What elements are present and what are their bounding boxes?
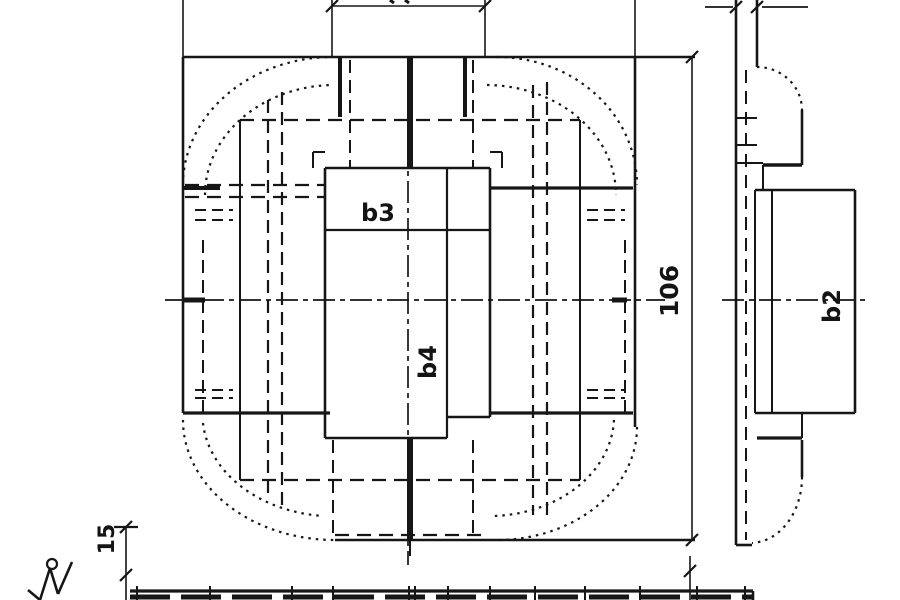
solid-edge-line — [390, 0, 394, 3]
technical-drawing: b3b4106b215 — [0, 0, 900, 600]
drawing-sheet: b3b4106b215 — [0, 0, 900, 600]
dimension-label-106: 106 — [655, 265, 684, 317]
solid-edge-line — [28, 590, 40, 600]
corner-radius-arc — [493, 420, 614, 516]
corner-radius-arc — [757, 67, 802, 110]
solid-edge-line — [58, 562, 72, 594]
corner-radius-arc — [203, 423, 323, 516]
surface-finish-mark-circle — [47, 559, 57, 569]
corner-radius-arc — [752, 477, 802, 543]
solid-edge-line — [40, 568, 50, 600]
dimension-label-b4: b4 — [414, 345, 442, 379]
dimension-label-b3: b3 — [361, 199, 395, 227]
corner-radius-arc — [497, 427, 637, 540]
solid-edge-line — [405, 0, 409, 3]
corner-radius-arc — [487, 85, 616, 195]
dimension-label-15: 15 — [95, 524, 120, 555]
dimension-label-b2: b2 — [818, 289, 846, 323]
solid-edge-line — [50, 568, 58, 594]
